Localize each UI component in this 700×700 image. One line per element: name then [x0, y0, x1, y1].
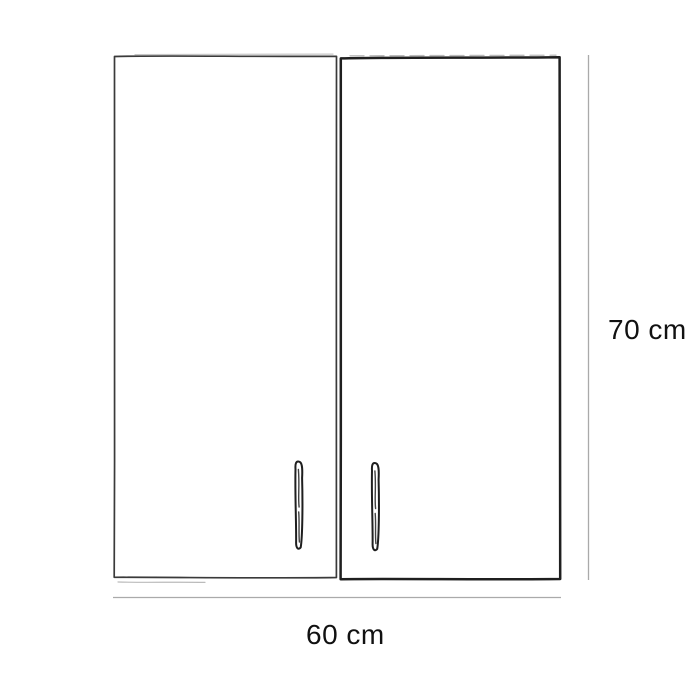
cabinet-diagram: 70 cm 60 cm — [0, 0, 700, 700]
left-door-handle — [295, 461, 302, 548]
width-dimension-label: 60 cm — [306, 621, 385, 649]
right-door-top-sketch-stroke — [350, 55, 556, 56]
right-door-handle-mark — [375, 514, 376, 544]
cabinet-drawing — [0, 0, 700, 700]
left-door-handle-mark — [298, 470, 299, 508]
right-door-handle-mark — [375, 471, 376, 509]
right-door-handle — [372, 463, 379, 550]
left-door-top-sketch-stroke — [135, 54, 333, 55]
height-dimension-label: 70 cm — [608, 316, 687, 344]
left-door-handle-mark — [299, 512, 300, 542]
